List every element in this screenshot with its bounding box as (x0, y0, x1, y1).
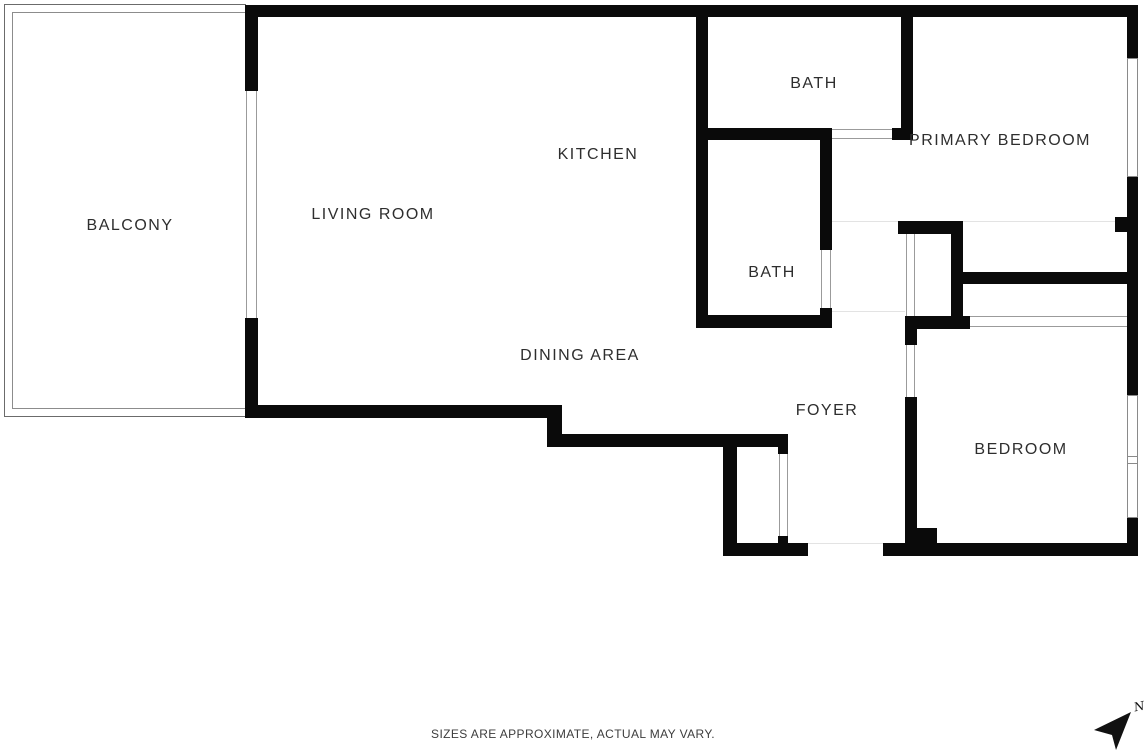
room-label-bath-mid: BATH (748, 264, 795, 282)
wall-primary-divider (951, 272, 1138, 284)
door-opening-line (906, 345, 907, 397)
door-opening-line (787, 454, 788, 536)
wall-right-return (1115, 217, 1127, 232)
door-opening-line (832, 138, 892, 139)
wall-right-lower (1127, 518, 1138, 556)
wall-kitchen-bath (696, 5, 708, 327)
entry-threshold-line (808, 543, 883, 544)
wall-bath-mid-right (820, 128, 832, 250)
door-opening-line (821, 250, 822, 308)
wall-bath-top-bottom (696, 128, 832, 140)
room-label-dining-area: DINING AREA (520, 347, 640, 365)
room-label-bedroom: BEDROOM (974, 441, 1067, 459)
door-opening-line (779, 454, 780, 536)
wall-living-left-lower (245, 318, 258, 418)
window-mullion (1128, 463, 1137, 464)
window-primary-bedroom (1127, 58, 1138, 177)
door-opening-line (830, 250, 831, 308)
wall-bottom-left (723, 543, 808, 556)
disclaimer-text: SIZES ARE APPROXIMATE, ACTUAL MAY VARY. (431, 727, 715, 741)
door-opening-line (832, 129, 892, 130)
north-arrow-icon: N (1085, 695, 1147, 752)
boundary-line (832, 311, 905, 312)
wall-living-left-upper (245, 5, 258, 91)
closet-sliding-door-line (970, 326, 1127, 327)
wall-living-bottom (245, 405, 562, 418)
door-opening-line (914, 345, 915, 397)
room-label-bath-top: BATH (790, 75, 837, 93)
boundary-line (832, 221, 1127, 222)
door-jamb (778, 447, 788, 454)
wall-bottom-right (883, 543, 1138, 556)
room-label-foyer: FOYER (796, 402, 859, 420)
wall-bath-mid-bottom (696, 315, 832, 328)
room-label-primary-bedroom: PRIMARY BEDROOM (909, 132, 1091, 150)
balcony-slider-line (256, 91, 257, 318)
wall-right-middle (1127, 177, 1138, 395)
room-label-balcony: BALCONY (87, 217, 174, 235)
room-label-kitchen: KITCHEN (558, 146, 639, 164)
wall-right-upper (1127, 5, 1138, 58)
room-label-living-room: LIVING ROOM (311, 206, 434, 224)
wall-bedroom-left (905, 397, 917, 543)
window-mullion (1128, 456, 1137, 457)
wall-primary-left (901, 5, 913, 140)
balcony-slider-line (246, 91, 247, 318)
window-bedroom (1127, 395, 1138, 518)
floor-plan: BALCONY LIVING ROOM KITCHEN DINING AREA … (0, 0, 1148, 752)
door-opening-line (914, 234, 915, 316)
wall-top (245, 5, 1138, 17)
door-opening-line (906, 234, 907, 316)
wall-dining-bottom (547, 434, 788, 447)
door-jamb (778, 536, 788, 544)
north-label: N (1132, 698, 1147, 714)
balcony-border-inner (12, 12, 246, 409)
closet-sliding-door-line (970, 316, 1127, 317)
wall-entry-left (723, 434, 737, 556)
